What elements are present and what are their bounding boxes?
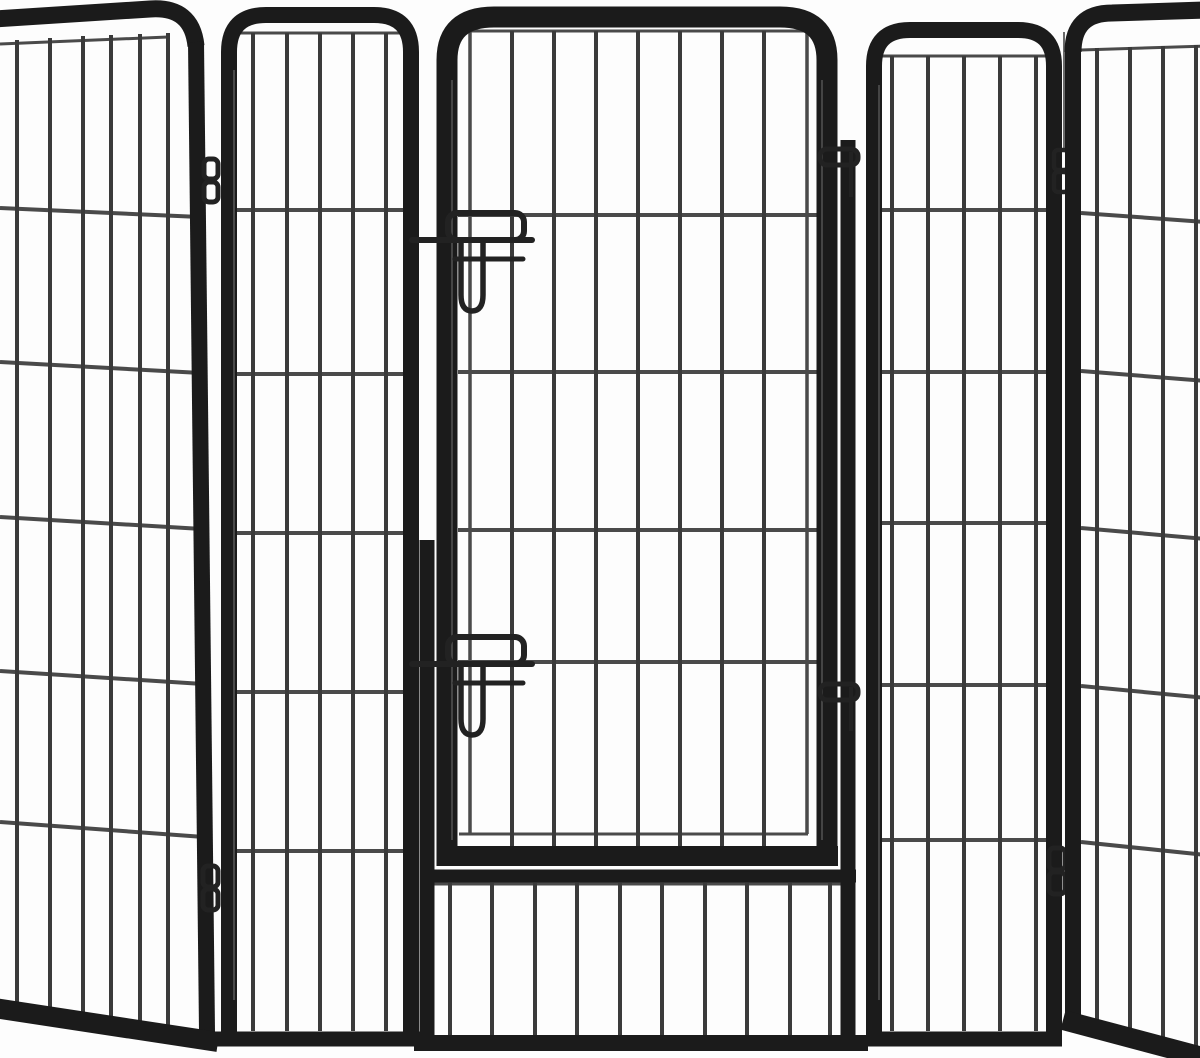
gate (437, 17, 838, 866)
panel-4 (866, 30, 1062, 1046)
latch-drop-handle (461, 667, 483, 735)
panel-1-wires (0, 37, 204, 837)
panel-1-bars (17, 33, 168, 1035)
panel-1 (0, 9, 218, 1042)
latch-drop-handle (461, 243, 483, 311)
gate-bars (512, 31, 764, 846)
gate-vertical-bars (512, 31, 764, 846)
playpen-product-photo (0, 0, 1200, 1058)
panel-5-bars (1097, 45, 1196, 1054)
hinge-loop-icon (204, 159, 218, 179)
panel-1-vertical-bars (17, 33, 168, 1035)
hinge-loop-icon (204, 182, 218, 202)
panel-4-vertical-bars (892, 56, 1036, 1031)
playpen-illustration (0, 0, 1200, 1058)
panel-5-vertical-bars (1097, 45, 1196, 1054)
panel-3-gate-panel (412, 17, 868, 1046)
panel-1-horizontal-wires (0, 208, 204, 837)
panel-2 (215, 15, 421, 1046)
panel-3-bottom-bars (450, 883, 830, 1035)
panel-4-bars (892, 56, 1036, 1031)
panel-3-bottom-vertical-bars (450, 883, 830, 1035)
panel-5 (1063, 10, 1200, 1058)
